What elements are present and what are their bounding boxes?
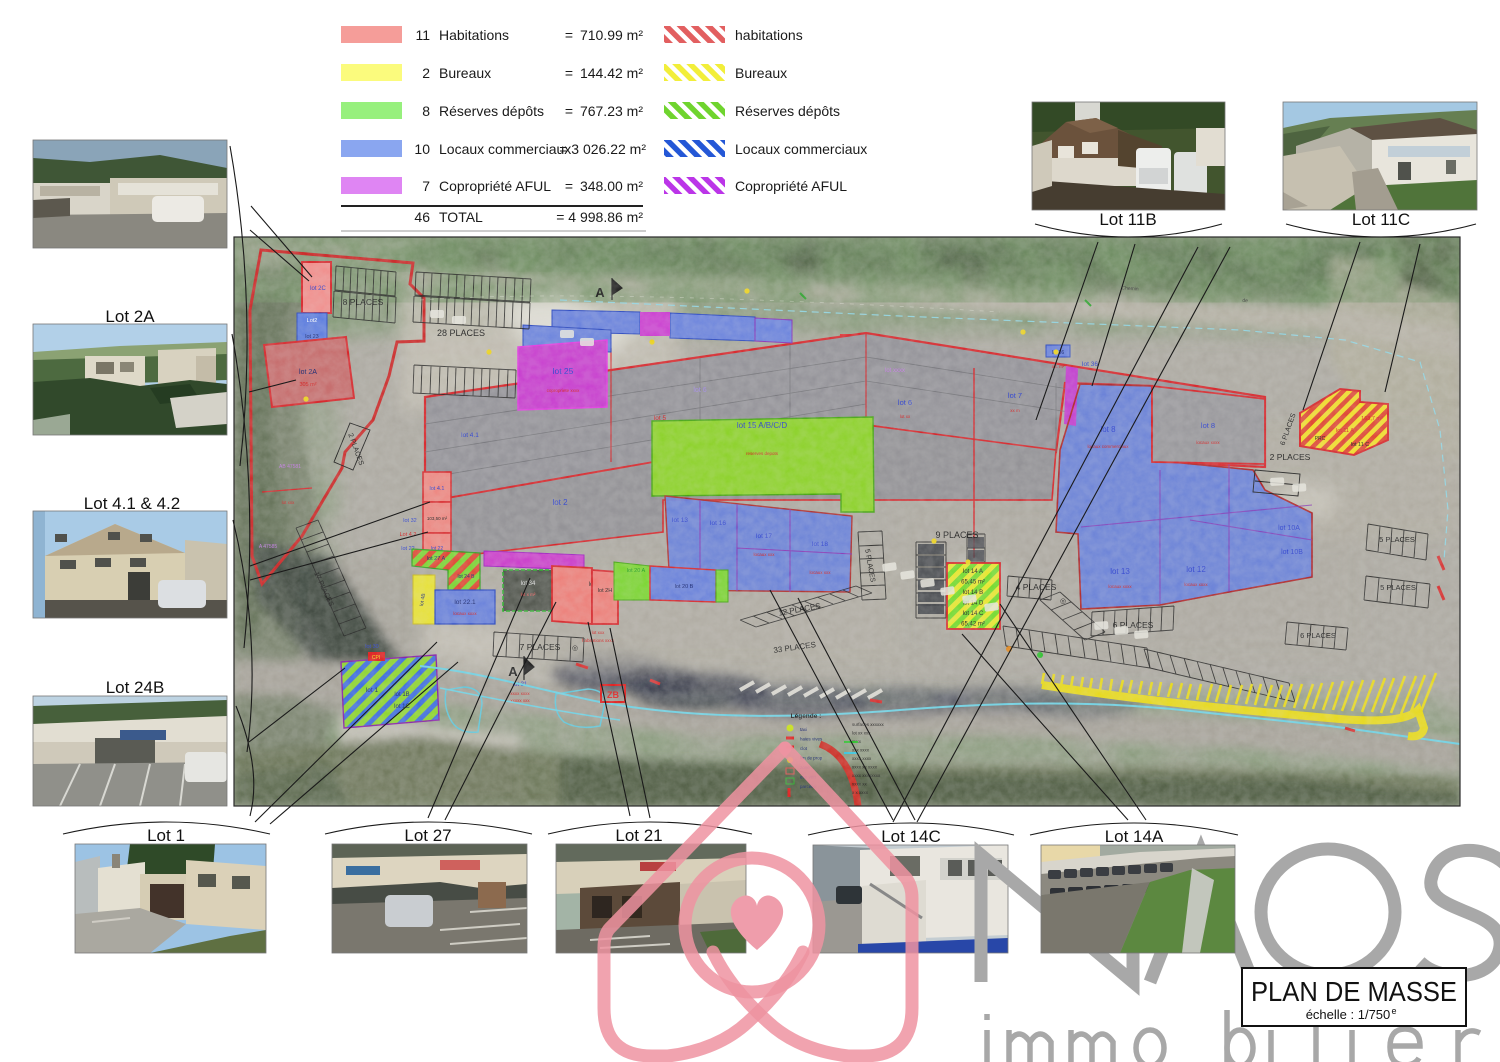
svg-text:11: 11: [415, 27, 430, 43]
svg-text:Locaux commerciaux: Locaux commerciaux: [735, 141, 867, 157]
svg-text:=: =: [565, 27, 573, 43]
svg-text:Lot 21: Lot 21: [615, 826, 662, 845]
svg-text:Copropriété AFUL: Copropriété AFUL: [735, 178, 847, 194]
svg-text:Bureaux: Bureaux: [735, 65, 787, 81]
svg-text:Lot 14C: Lot 14C: [881, 827, 941, 846]
svg-text:=: =: [565, 103, 573, 119]
svg-text:=: =: [565, 178, 573, 194]
svg-text:Lot 4.1 & 4.2: Lot 4.1 & 4.2: [84, 494, 180, 513]
svg-text:Lot 1: Lot 1: [147, 826, 185, 845]
svg-text:46: 46: [414, 209, 430, 225]
svg-text:Habitations: Habitations: [439, 27, 509, 43]
svg-text:Lot 24B: Lot 24B: [106, 678, 165, 697]
svg-text:2: 2: [422, 65, 430, 81]
svg-text:échelle : 1/750: échelle : 1/750: [1306, 1007, 1391, 1022]
svg-text:767.23 m²: 767.23 m²: [580, 103, 643, 119]
svg-text:e: e: [1391, 1006, 1396, 1016]
svg-text:PLAN DE MASSE: PLAN DE MASSE: [1251, 976, 1457, 1007]
svg-text:Lot 11C: Lot 11C: [1352, 210, 1410, 229]
svg-text:144.42 m²: 144.42 m²: [580, 65, 643, 81]
svg-text:Lot 2A: Lot 2A: [105, 307, 155, 326]
svg-text:= 3 026.22 m²: = 3 026.22 m²: [559, 141, 646, 157]
svg-text:10: 10: [414, 141, 430, 157]
svg-text:Copropriété AFUL: Copropriété AFUL: [439, 178, 551, 194]
svg-text:8: 8: [422, 103, 430, 119]
svg-text:Bureaux: Bureaux: [439, 65, 491, 81]
svg-text:Réserves dépôts: Réserves dépôts: [735, 103, 840, 119]
svg-text:Réserves dépôts: Réserves dépôts: [439, 103, 544, 119]
svg-text:710.99 m²: 710.99 m²: [580, 27, 643, 43]
svg-text:Locaux commerciaux: Locaux commerciaux: [439, 141, 571, 157]
svg-text:= 4 998.86 m²: = 4 998.86 m²: [556, 209, 643, 225]
svg-text:Lot 27: Lot 27: [404, 826, 451, 845]
svg-text:Lot 14A: Lot 14A: [1105, 827, 1164, 846]
svg-text:habitations: habitations: [735, 27, 803, 43]
svg-text:348.00 m²: 348.00 m²: [580, 178, 643, 194]
svg-text:Lot 11B: Lot 11B: [1099, 210, 1156, 229]
svg-text:TOTAL: TOTAL: [439, 209, 483, 225]
svg-text:7: 7: [422, 178, 430, 194]
svg-text:=: =: [565, 65, 573, 81]
